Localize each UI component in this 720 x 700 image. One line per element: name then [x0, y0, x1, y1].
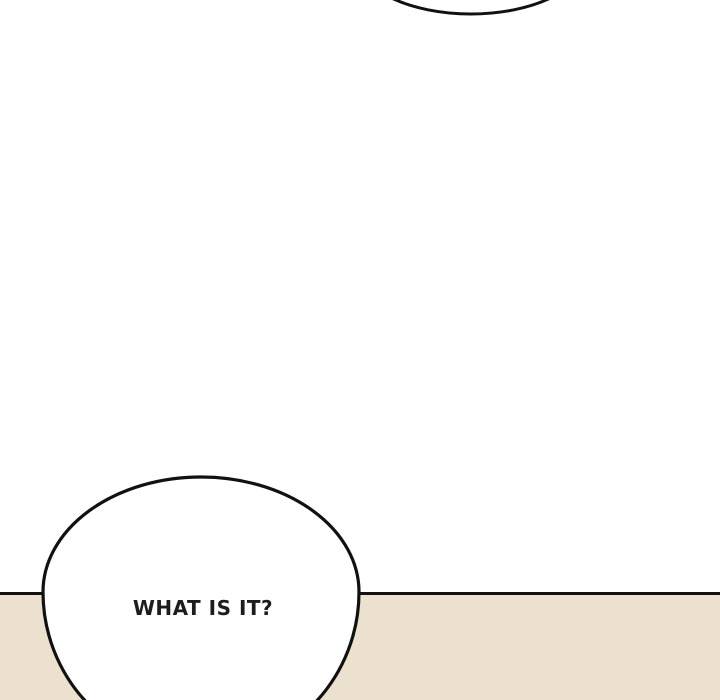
panel-artwork — [0, 0, 720, 700]
comic-panel: WHAT IS IT? — [0, 0, 720, 700]
bottom-speech-bubble — [43, 477, 359, 700]
speech-text: WHAT IS IT? — [133, 596, 273, 620]
top-speech-bubble — [354, 0, 588, 14]
